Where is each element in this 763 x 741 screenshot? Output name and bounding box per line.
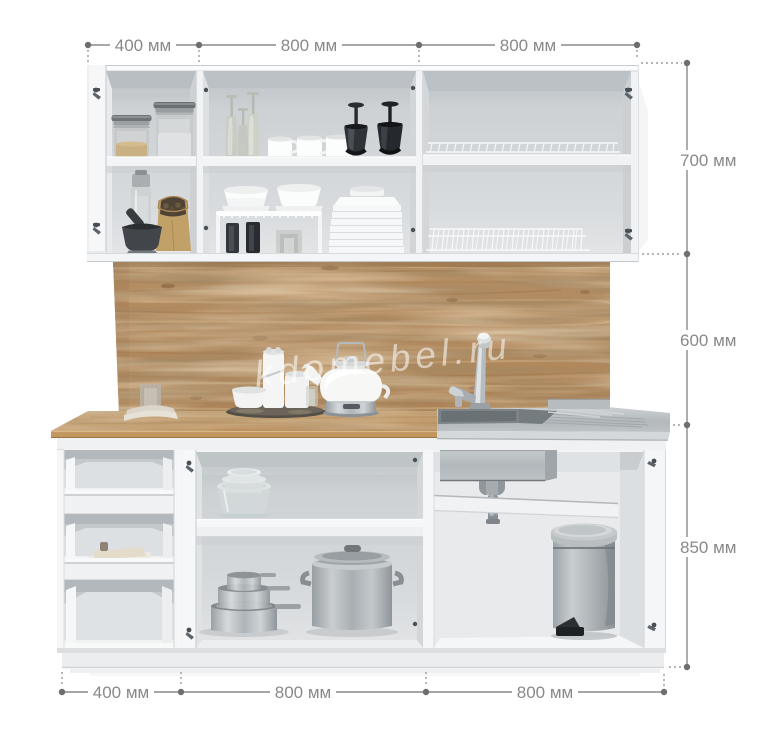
svg-text:400 мм: 400 мм bbox=[115, 36, 171, 55]
svg-text:850 мм: 850 мм bbox=[680, 538, 736, 557]
svg-text:800 мм: 800 мм bbox=[275, 683, 331, 702]
svg-text:800 мм: 800 мм bbox=[500, 36, 556, 55]
svg-text:600 мм: 600 мм bbox=[680, 331, 736, 350]
svg-text:400 мм: 400 мм bbox=[93, 683, 149, 702]
svg-text:800 мм: 800 мм bbox=[281, 36, 337, 55]
svg-text:800 мм: 800 мм bbox=[517, 683, 573, 702]
svg-text:700 мм: 700 мм bbox=[680, 151, 736, 170]
